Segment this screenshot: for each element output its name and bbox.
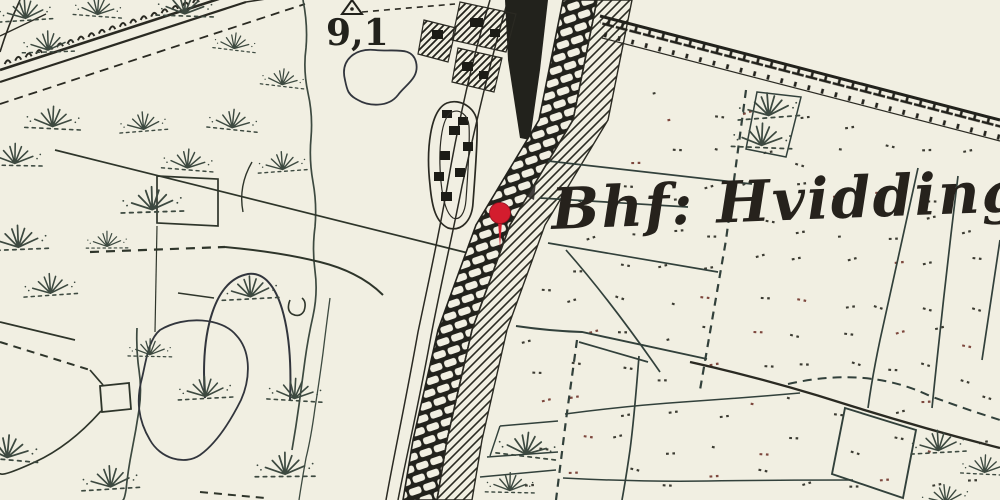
elevation-label: 9,1 [326,12,389,54]
map-viewport[interactable]: 9,1 Bhf: Hvidding Bhf Hvidding [0,0,1000,500]
historical-map-canvas[interactable]: 9,1 Bhf: Hvidding Bhf Hvidding [0,0,1000,500]
